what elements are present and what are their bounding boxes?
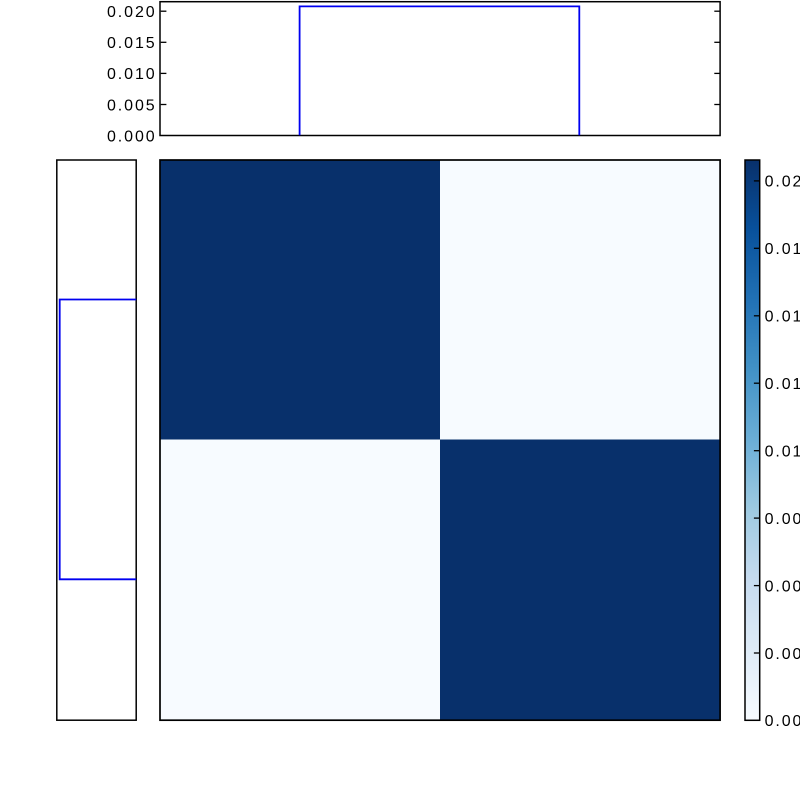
svg-text:0.0175: 0.0175 <box>765 241 800 258</box>
svg-text:0.015: 0.015 <box>765 309 800 326</box>
svg-text:0.020: 0.020 <box>765 174 800 191</box>
svg-text:0.015: 0.015 <box>107 35 157 52</box>
svg-text:0.000: 0.000 <box>107 128 157 145</box>
svg-text:0.0075: 0.0075 <box>765 511 800 528</box>
svg-text:0.005: 0.005 <box>107 97 157 114</box>
svg-text:0.000: 0.000 <box>765 713 800 730</box>
svg-text:0.010: 0.010 <box>765 444 800 461</box>
svg-text:0.005: 0.005 <box>765 578 800 595</box>
svg-text:0.020: 0.020 <box>107 4 157 21</box>
svg-text:0.010: 0.010 <box>107 66 157 83</box>
svg-text:0.0125: 0.0125 <box>765 376 800 393</box>
svg-text:0.0025: 0.0025 <box>765 646 800 663</box>
